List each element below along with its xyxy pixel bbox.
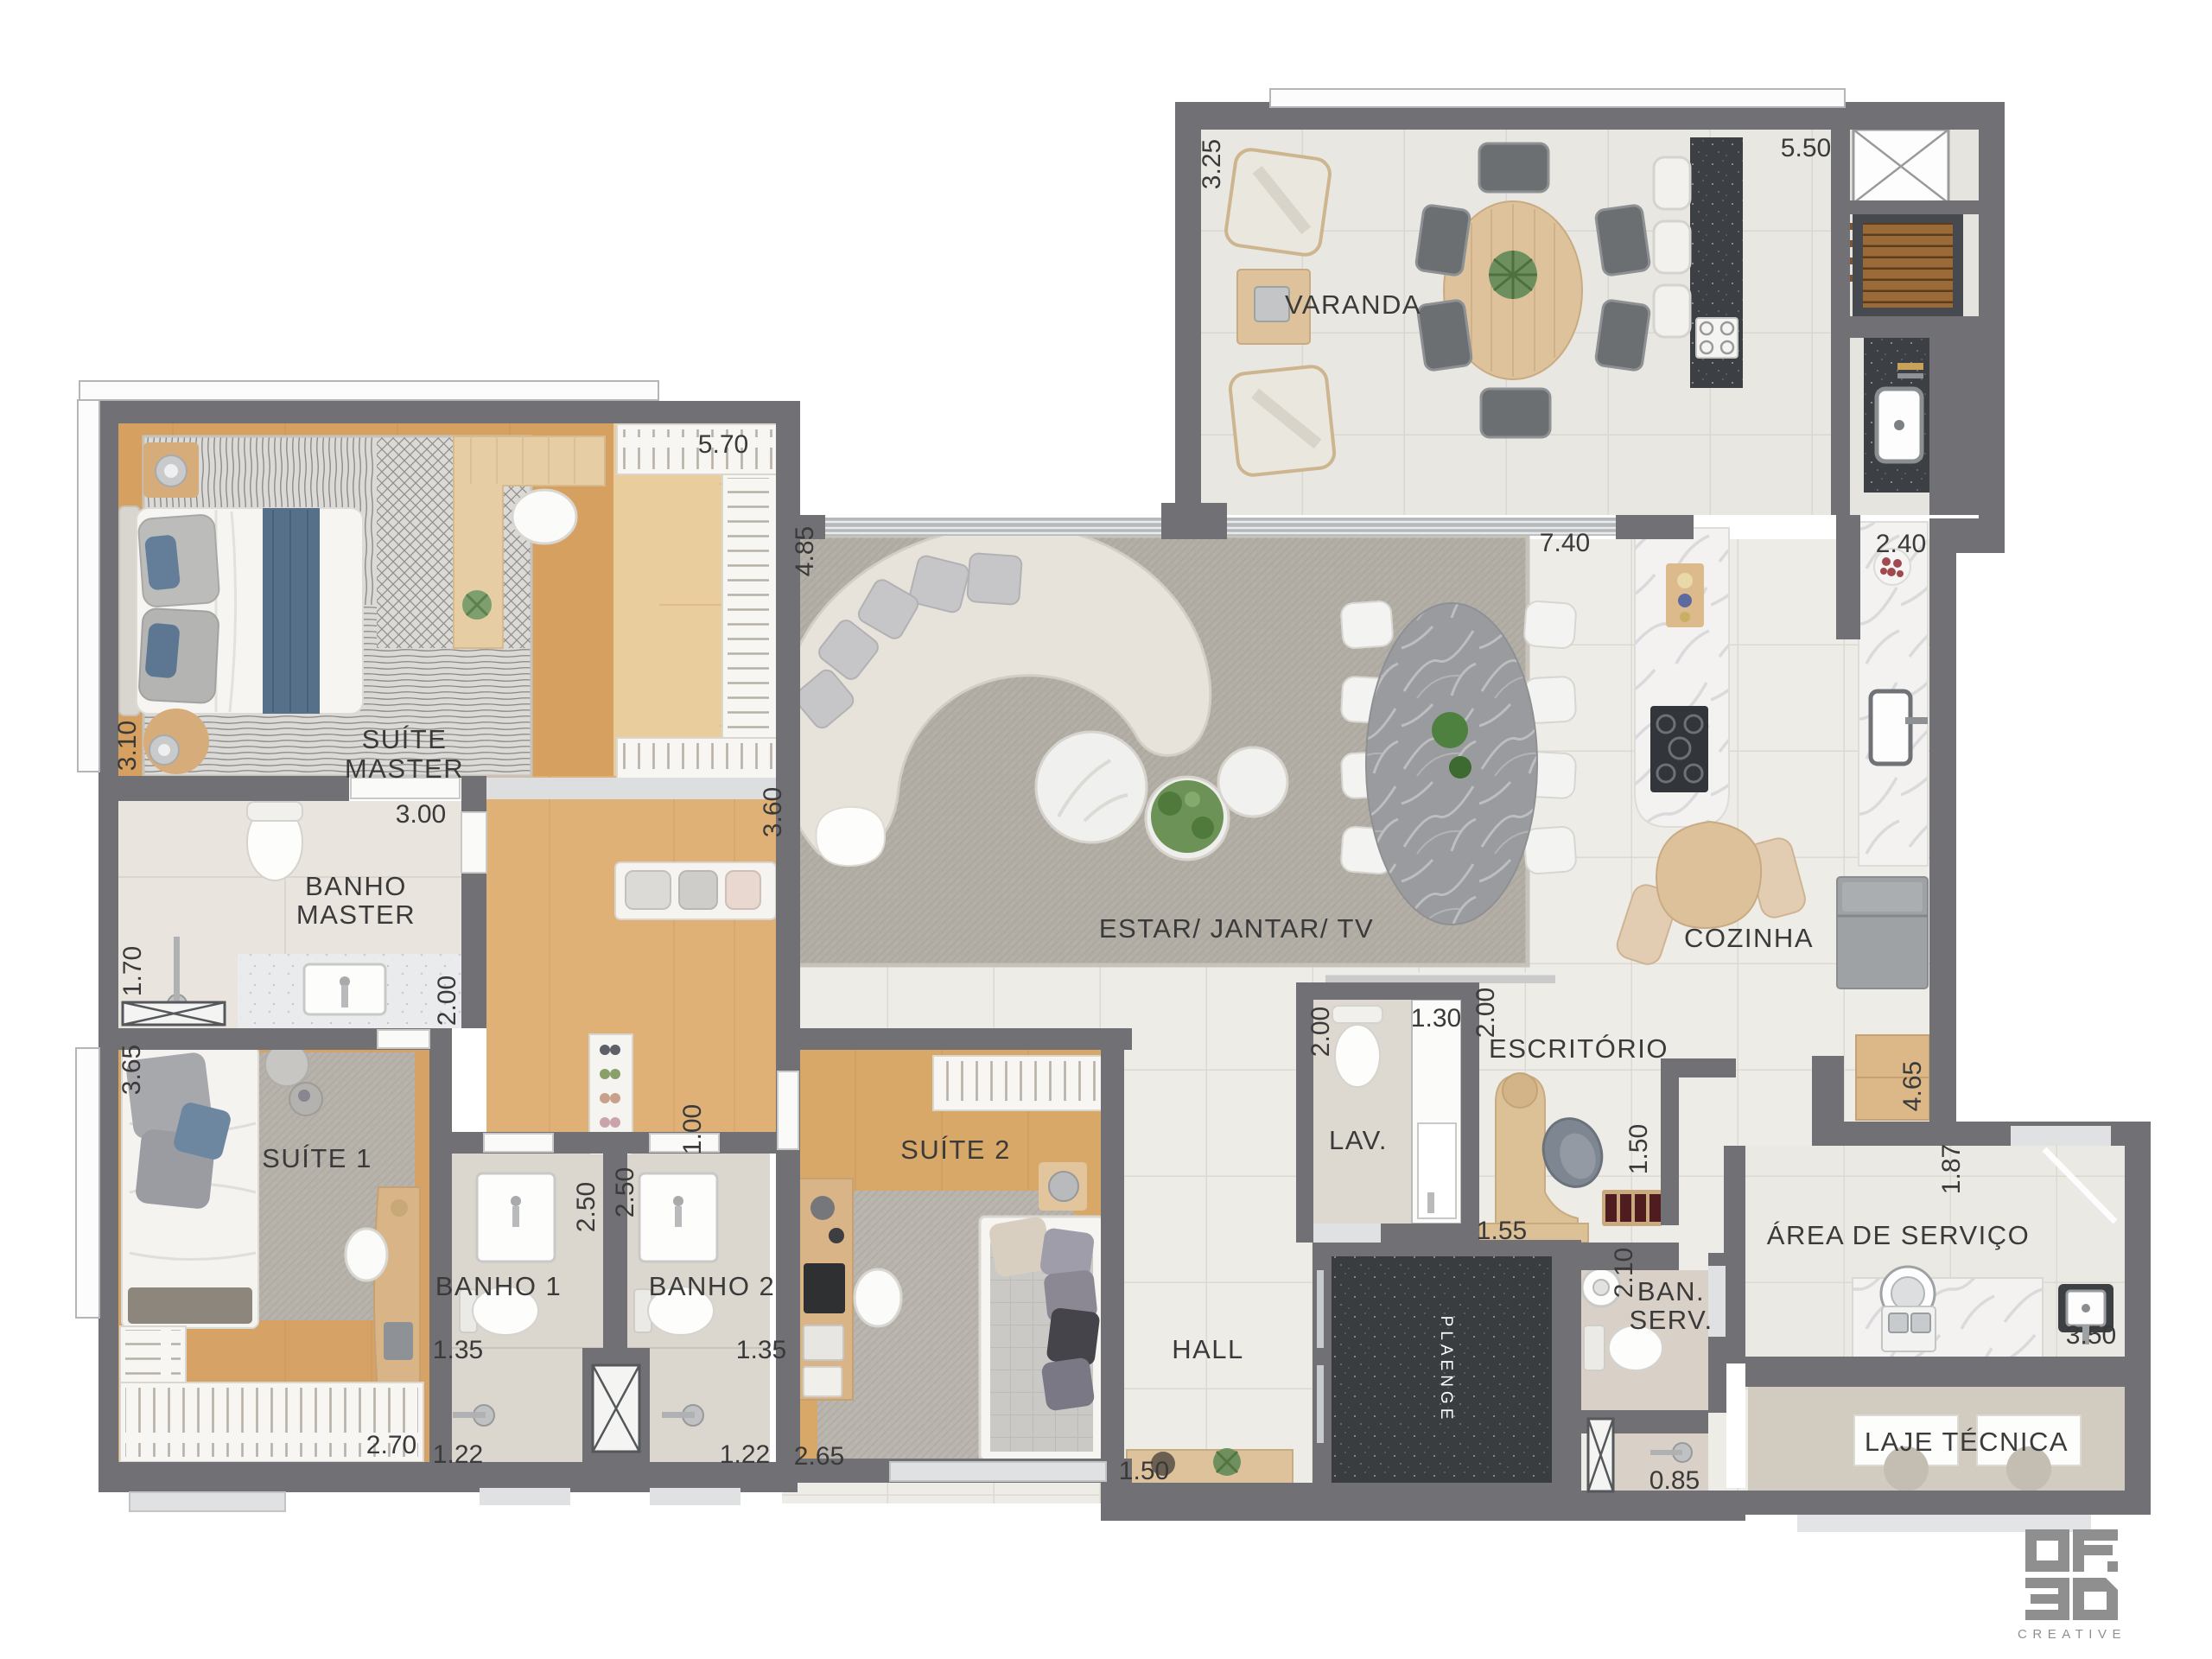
svg-text:2.70: 2.70 <box>366 1431 416 1459</box>
svg-text:3.00: 3.00 <box>396 800 446 829</box>
svg-text:1.22: 1.22 <box>433 1440 483 1469</box>
svg-text:2.65: 2.65 <box>794 1442 844 1471</box>
svg-text:SERV.: SERV. <box>1629 1305 1713 1335</box>
svg-text:7.40: 7.40 <box>1540 529 1590 557</box>
svg-text:1.50: 1.50 <box>1119 1457 1169 1485</box>
svg-text:2.40: 2.40 <box>1876 530 1926 558</box>
svg-text:SUÍTE: SUÍTE <box>362 724 448 754</box>
svg-text:ESCRITÓRIO: ESCRITÓRIO <box>1489 1033 1669 1064</box>
svg-text:1.00: 1.00 <box>678 1104 707 1154</box>
svg-text:2.00: 2.00 <box>1471 988 1500 1038</box>
svg-text:3.10: 3.10 <box>113 721 142 771</box>
svg-text:BANHO 2: BANHO 2 <box>649 1271 776 1301</box>
svg-text:5.70: 5.70 <box>698 430 748 459</box>
svg-text:2.00: 2.00 <box>433 976 461 1026</box>
svg-text:SUÍTE 2: SUÍTE 2 <box>900 1135 1011 1165</box>
svg-text:2.10: 2.10 <box>1610 1248 1638 1298</box>
svg-text:COZINHA: COZINHA <box>1684 923 1814 953</box>
svg-text:1.22: 1.22 <box>720 1440 770 1469</box>
svg-text:CREATIVE: CREATIVE <box>2018 1627 2126 1642</box>
svg-text:LAV.: LAV. <box>1329 1125 1388 1155</box>
svg-text:LAJE TÉCNICA: LAJE TÉCNICA <box>1865 1427 2069 1457</box>
svg-text:4.65: 4.65 <box>1898 1061 1927 1111</box>
svg-text:3.50: 3.50 <box>2066 1321 2116 1350</box>
svg-text:3.65: 3.65 <box>118 1045 146 1095</box>
svg-text:VARANDA: VARANDA <box>1285 289 1421 320</box>
svg-text:2.50: 2.50 <box>572 1182 601 1232</box>
svg-text:BANHO 1: BANHO 1 <box>435 1271 563 1301</box>
svg-text:1.87: 1.87 <box>1937 1144 1966 1194</box>
svg-text:3.60: 3.60 <box>759 787 787 837</box>
svg-text:MASTER: MASTER <box>296 899 416 930</box>
svg-text:5.50: 5.50 <box>1781 134 1831 162</box>
svg-text:SUÍTE 1: SUÍTE 1 <box>262 1143 372 1173</box>
svg-text:0.85: 0.85 <box>1649 1466 1700 1495</box>
svg-text:2.50: 2.50 <box>611 1167 639 1217</box>
svg-text:PLAENGE: PLAENGE <box>1437 1316 1455 1424</box>
svg-text:2.00: 2.00 <box>1306 1007 1335 1057</box>
svg-text:BAN.: BAN. <box>1637 1276 1705 1306</box>
svg-text:ESTAR/ JANTAR/ TV: ESTAR/ JANTAR/ TV <box>1099 913 1374 944</box>
svg-text:1.55: 1.55 <box>1477 1217 1527 1245</box>
svg-text:1.50: 1.50 <box>1624 1124 1653 1174</box>
svg-text:1.35: 1.35 <box>736 1336 786 1364</box>
svg-text:1.35: 1.35 <box>433 1336 483 1364</box>
svg-text:ÁREA DE SERVIÇO: ÁREA DE SERVIÇO <box>1767 1220 2030 1250</box>
svg-text:3.25: 3.25 <box>1198 139 1226 189</box>
svg-text:BANHO: BANHO <box>305 871 407 901</box>
svg-text:1.70: 1.70 <box>118 946 147 996</box>
svg-text:MASTER: MASTER <box>345 753 464 784</box>
svg-text:4.85: 4.85 <box>791 526 819 576</box>
svg-text:HALL: HALL <box>1172 1334 1244 1364</box>
svg-text:1.30: 1.30 <box>1411 1004 1461 1033</box>
